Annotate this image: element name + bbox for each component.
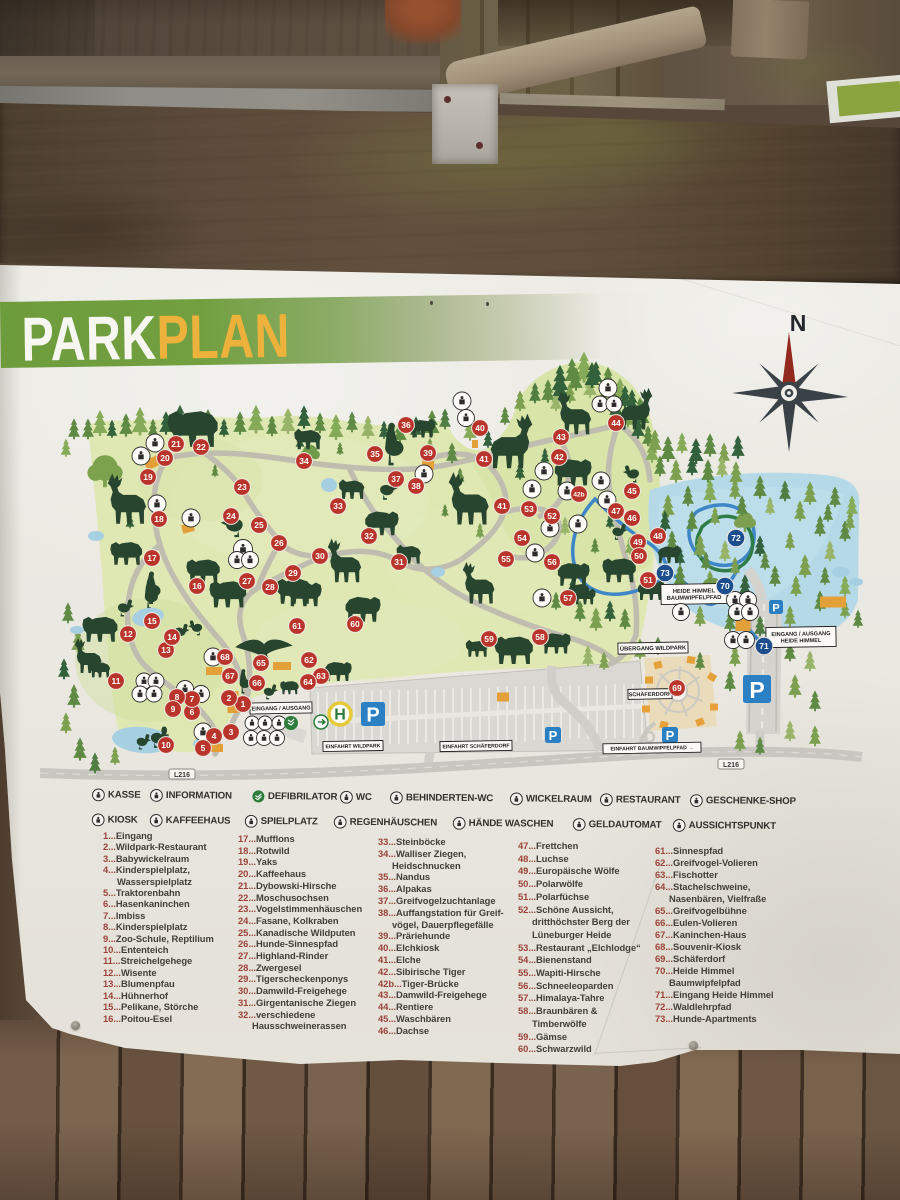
svg-text:67: 67 bbox=[225, 671, 235, 681]
svg-text:43: 43 bbox=[556, 432, 566, 442]
svg-text:2: 2 bbox=[227, 693, 232, 703]
svg-text:44: 44 bbox=[611, 418, 621, 428]
svg-text:5: 5 bbox=[201, 743, 206, 753]
svg-text:46: 46 bbox=[627, 513, 637, 523]
svg-text:7: 7 bbox=[190, 694, 195, 704]
svg-text:45: 45 bbox=[627, 486, 637, 496]
svg-text:57: 57 bbox=[563, 593, 573, 603]
svg-text:48: 48 bbox=[653, 531, 663, 541]
svg-text:66: 66 bbox=[252, 678, 262, 688]
svg-text:36: 36 bbox=[401, 420, 411, 430]
svg-text:53: 53 bbox=[524, 504, 534, 514]
svg-text:ÜBERGANG WILDPARK: ÜBERGANG WILDPARK bbox=[620, 644, 687, 652]
svg-text:32: 32 bbox=[364, 531, 374, 541]
svg-text:23: 23 bbox=[237, 482, 247, 492]
svg-text:34: 34 bbox=[299, 456, 309, 466]
svg-text:14: 14 bbox=[167, 632, 177, 642]
svg-text:9: 9 bbox=[171, 704, 176, 714]
svg-text:33: 33 bbox=[333, 501, 343, 511]
svg-text:P: P bbox=[666, 728, 675, 743]
svg-text:L216: L216 bbox=[723, 762, 739, 769]
svg-text:40: 40 bbox=[475, 423, 485, 433]
svg-text:1: 1 bbox=[241, 699, 246, 709]
svg-text:27: 27 bbox=[242, 576, 252, 586]
svg-text:15: 15 bbox=[147, 616, 157, 626]
svg-text:L216: L216 bbox=[174, 772, 190, 779]
svg-text:24: 24 bbox=[226, 511, 236, 521]
svg-text:69: 69 bbox=[672, 683, 682, 693]
svg-text:EINFAHRT WILDPARK: EINFAHRT WILDPARK bbox=[325, 743, 380, 750]
svg-text:20: 20 bbox=[160, 453, 170, 463]
svg-text:54: 54 bbox=[517, 533, 527, 543]
svg-text:63: 63 bbox=[316, 671, 326, 681]
svg-text:60: 60 bbox=[350, 619, 360, 629]
svg-text:61: 61 bbox=[292, 621, 302, 631]
svg-text:31: 31 bbox=[394, 557, 404, 567]
svg-text:41: 41 bbox=[479, 454, 489, 464]
svg-text:SCHÄFERDORF: SCHÄFERDORF bbox=[629, 691, 673, 699]
svg-text:65: 65 bbox=[256, 658, 266, 668]
svg-text:BAUMWIPFELPFAD: BAUMWIPFELPFAD bbox=[667, 595, 722, 602]
svg-text:12: 12 bbox=[123, 629, 133, 639]
svg-text:29: 29 bbox=[288, 568, 298, 578]
svg-text:28: 28 bbox=[265, 582, 275, 592]
svg-text:39: 39 bbox=[423, 448, 433, 458]
svg-text:EINFAHRT SCHÄFERDORF: EINFAHRT SCHÄFERDORF bbox=[442, 742, 509, 750]
svg-text:16: 16 bbox=[192, 581, 202, 591]
svg-text:55: 55 bbox=[501, 554, 511, 564]
svg-text:26: 26 bbox=[274, 538, 284, 548]
svg-text:25: 25 bbox=[254, 520, 264, 530]
svg-text:HEIDE HIMMEL: HEIDE HIMMEL bbox=[781, 638, 822, 645]
svg-text:62: 62 bbox=[304, 655, 314, 665]
svg-text:21: 21 bbox=[171, 439, 181, 449]
svg-text:P: P bbox=[366, 705, 379, 727]
svg-text:17: 17 bbox=[147, 553, 157, 563]
svg-text:11: 11 bbox=[112, 676, 121, 686]
svg-text:59: 59 bbox=[484, 634, 494, 644]
svg-text:HEIDE HIMMEL: HEIDE HIMMEL bbox=[673, 588, 716, 595]
svg-text:42b: 42b bbox=[573, 491, 584, 498]
svg-text:EINGANG / AUSGANG: EINGANG / AUSGANG bbox=[771, 631, 830, 638]
svg-text:4: 4 bbox=[212, 731, 217, 741]
svg-text:49: 49 bbox=[633, 537, 643, 547]
svg-text:71: 71 bbox=[759, 641, 769, 651]
svg-text:73: 73 bbox=[660, 568, 670, 578]
svg-text:H: H bbox=[334, 707, 346, 724]
svg-text:P: P bbox=[772, 602, 779, 614]
svg-text:64: 64 bbox=[303, 677, 313, 687]
svg-text:22: 22 bbox=[196, 442, 206, 452]
svg-text:56: 56 bbox=[547, 557, 557, 567]
svg-text:58: 58 bbox=[535, 632, 545, 642]
svg-text:51: 51 bbox=[643, 575, 653, 585]
svg-text:3: 3 bbox=[229, 727, 234, 737]
svg-text:35: 35 bbox=[370, 449, 380, 459]
svg-text:6: 6 bbox=[190, 707, 195, 717]
svg-text:P: P bbox=[549, 728, 558, 743]
svg-text:72: 72 bbox=[731, 533, 741, 543]
svg-text:EINGANG / AUSGANG: EINGANG / AUSGANG bbox=[251, 705, 310, 712]
svg-text:18: 18 bbox=[154, 514, 164, 524]
svg-text:13: 13 bbox=[161, 645, 171, 655]
svg-text:10: 10 bbox=[161, 740, 171, 750]
svg-text:37: 37 bbox=[391, 474, 401, 484]
svg-text:P: P bbox=[749, 677, 764, 703]
svg-text:68: 68 bbox=[220, 652, 230, 662]
svg-text:42: 42 bbox=[554, 452, 564, 462]
svg-text:19: 19 bbox=[143, 472, 153, 482]
svg-text:50: 50 bbox=[634, 551, 644, 561]
svg-text:47: 47 bbox=[611, 506, 621, 516]
svg-text:41: 41 bbox=[497, 501, 507, 511]
svg-text:52: 52 bbox=[547, 511, 557, 521]
svg-text:30: 30 bbox=[315, 551, 325, 561]
svg-text:38: 38 bbox=[411, 481, 421, 491]
svg-text:70: 70 bbox=[720, 581, 730, 591]
